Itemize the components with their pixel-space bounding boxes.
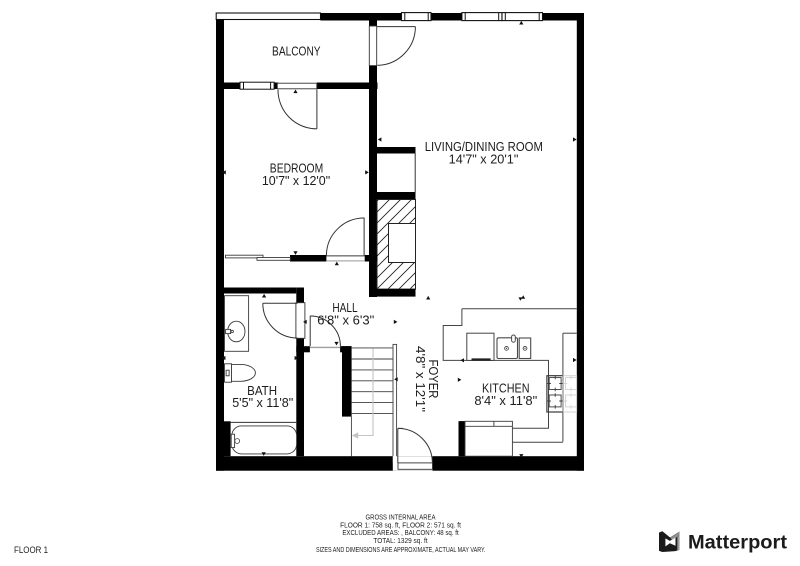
svg-text:10'7" x 12'0": 10'7" x 12'0" (262, 173, 331, 188)
svg-text:Matterport: Matterport (688, 532, 788, 553)
svg-text:BALCONY: BALCONY (272, 44, 321, 59)
svg-text:5'5" x 11'8": 5'5" x 11'8" (232, 395, 293, 410)
svg-text:14'7" x 20'1": 14'7" x 20'1" (449, 151, 519, 166)
svg-text:FLOOR 1: FLOOR 1 (14, 545, 48, 556)
svg-text:6'8" x 6'3": 6'8" x 6'3" (317, 312, 374, 327)
svg-text:SIZES AND DIMENSIONS ARE APPRO: SIZES AND DIMENSIONS ARE APPROXIMATE, AC… (316, 547, 486, 554)
svg-text:8'4" x 11'8": 8'4" x 11'8" (474, 393, 537, 408)
svg-text:4'8" x 12'1": 4'8" x 12'1" (413, 346, 428, 412)
svg-text:TOTAL: 1329 sq. ft: TOTAL: 1329 sq. ft (373, 536, 428, 545)
